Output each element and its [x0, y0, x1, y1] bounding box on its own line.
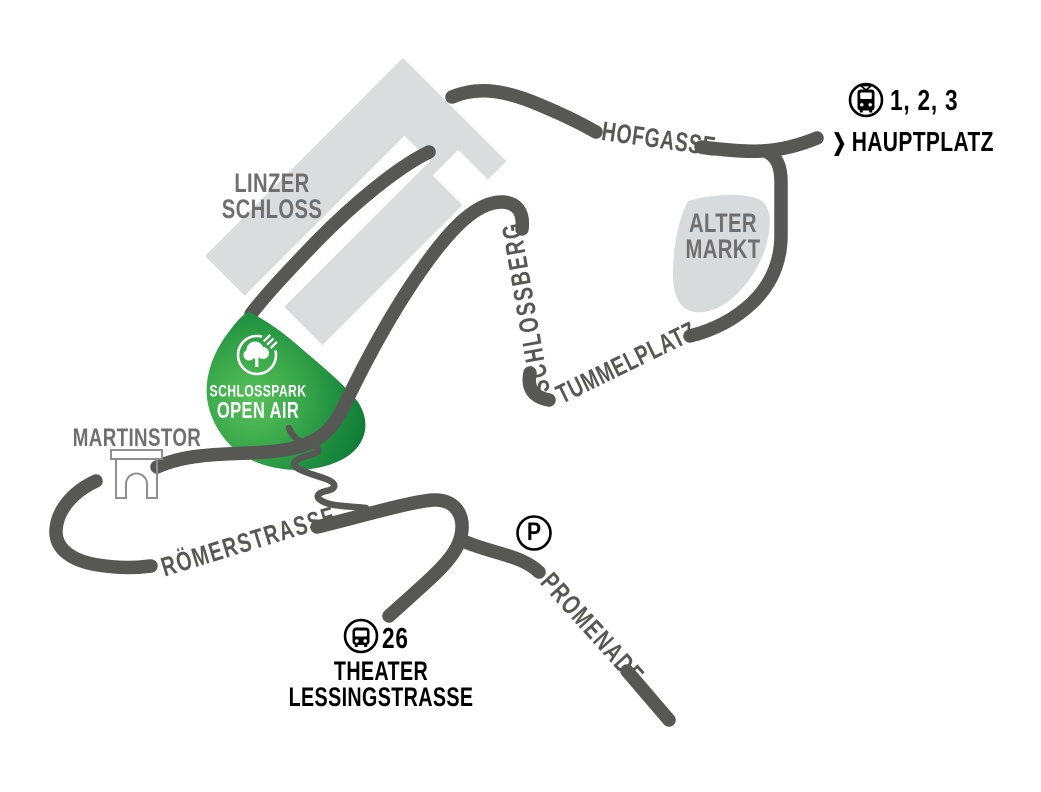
- alter-markt-line2: MARKT: [686, 236, 761, 262]
- bus-stop-name: THEATER LESSINGSTRASSE: [289, 658, 474, 710]
- tram-icon: [850, 84, 882, 116]
- bus-stop-line2: LESSINGSTRASSE: [289, 684, 474, 710]
- bus-icon: [345, 620, 377, 652]
- alter-markt-line1: ALTER: [686, 210, 761, 236]
- tram-lines-label: 1, 2, 3: [890, 85, 958, 118]
- linzer-schloss-line1: LINZER: [222, 170, 323, 196]
- parking-label: P: [527, 518, 541, 547]
- chevron-right-icon: ❯: [832, 129, 846, 156]
- map-canvas: [0, 0, 1041, 792]
- road-roemerstrasse-theater: [317, 500, 462, 616]
- bus-stop-line1: THEATER: [289, 658, 474, 684]
- linz-city-map: HOFGASSE SCHLOSSBERG TUMMELPLATZ RÖMERST…: [0, 0, 1041, 792]
- place-label-martinstor: MARTINSTOR: [73, 426, 201, 450]
- place-label-alter-markt: ALTER MARKT: [686, 210, 761, 262]
- linzer-schloss-line2: SCHLOSS: [222, 196, 323, 222]
- place-label-linzer-schloss: LINZER SCHLOSS: [222, 170, 323, 222]
- road-martinstor-curve: [56, 481, 151, 567]
- martinstor-gate-icon: [111, 450, 162, 498]
- road-hofgasse-west: [452, 91, 596, 132]
- bus-line-label: 26: [382, 623, 409, 656]
- road-hofgasse-east: [701, 138, 817, 151]
- tram-destination-label: HAUPTPLATZ: [852, 126, 994, 158]
- tram-destination-row: ❯ HAUPTPLATZ: [832, 126, 994, 158]
- venue-name-line2: OPEN AIR: [217, 399, 299, 421]
